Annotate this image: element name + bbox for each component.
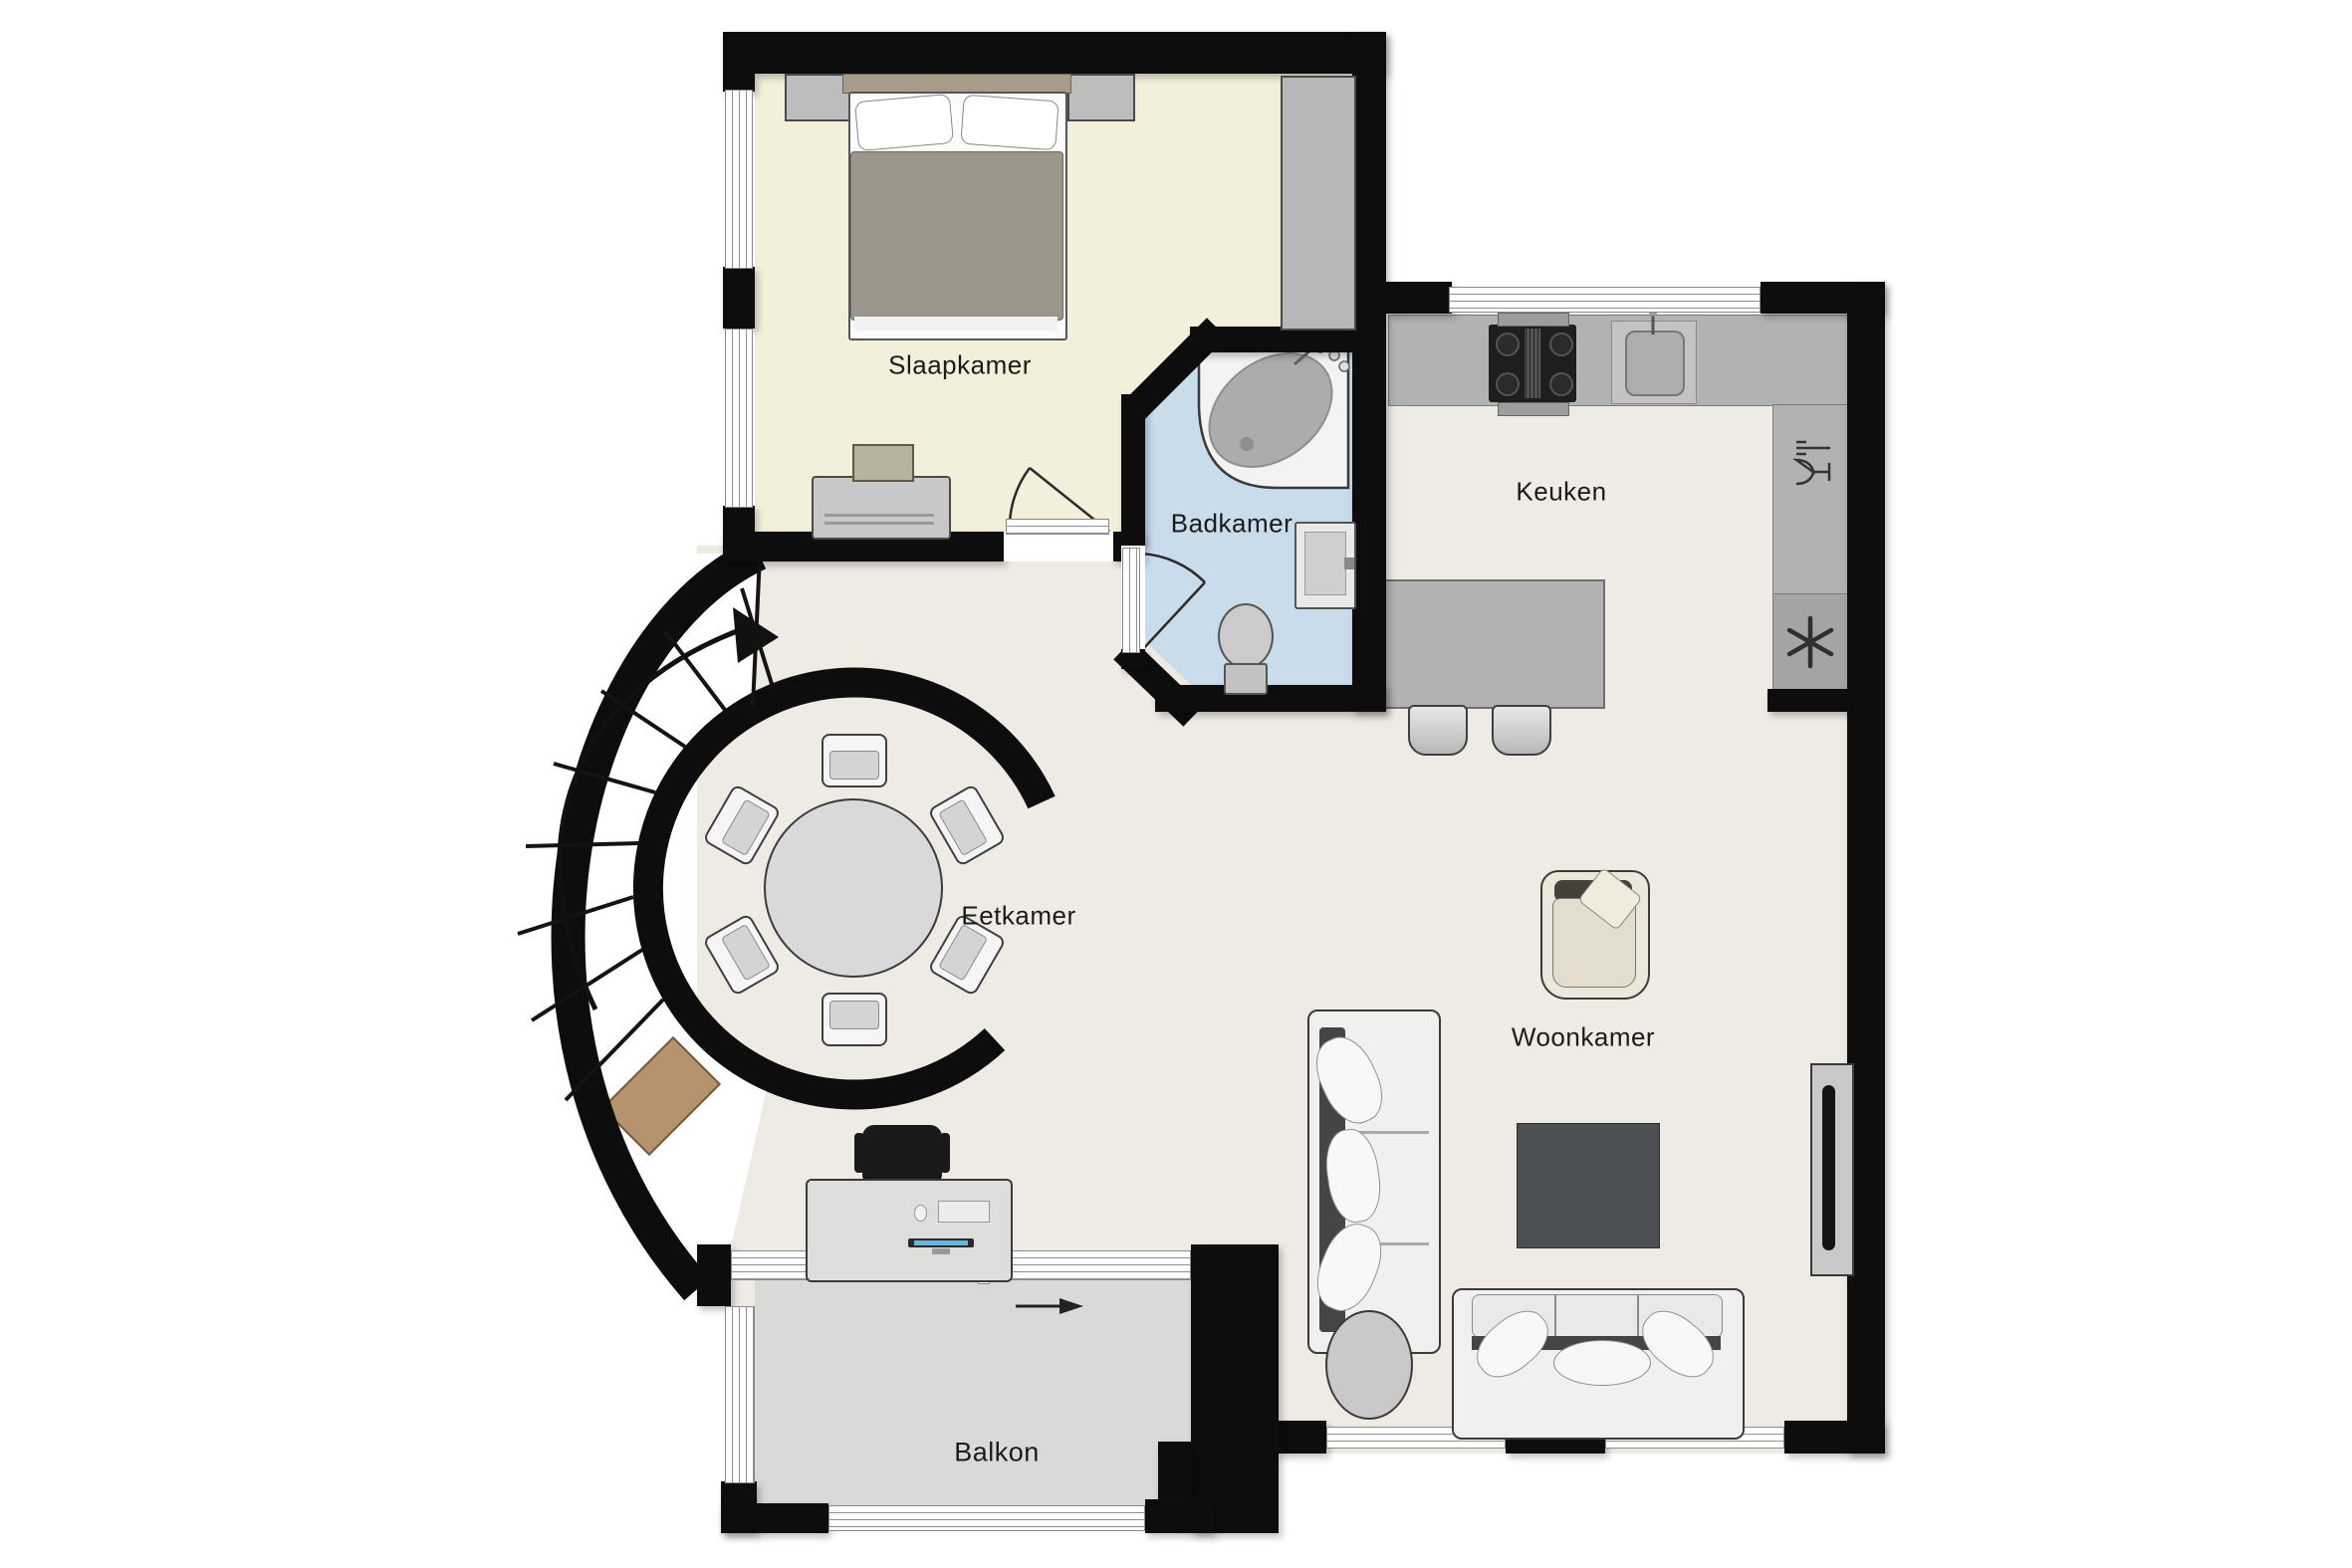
desk (806, 1179, 1013, 1282)
kitchen-counter-right (1772, 404, 1850, 595)
room-label-balkon: Balkon (954, 1438, 1040, 1468)
bed-headboard (842, 74, 1071, 94)
bed-pillow (960, 95, 1058, 151)
wall (723, 267, 755, 329)
balcony-right-wall (1191, 1244, 1279, 1533)
wall (1767, 689, 1850, 712)
monitor-base (932, 1248, 950, 1254)
wall (1847, 282, 1885, 1454)
bed-sheet (854, 317, 1058, 331)
tv (1822, 1085, 1835, 1250)
toilet-tank (1224, 663, 1268, 695)
kitchen-sink (1625, 331, 1685, 396)
balcony-floor (755, 1280, 1191, 1515)
monitor-screen (914, 1240, 968, 1245)
floor-plan: Slaapkamer Badkamer Keuken Eetkamer Woon… (0, 0, 2352, 1568)
room-label-keuken: Keuken (1516, 477, 1606, 508)
office-chair-arm (940, 1133, 950, 1173)
window (1449, 287, 1761, 313)
office-chair-arm (854, 1133, 864, 1173)
stove-flap-top (1498, 313, 1569, 327)
bedroom-door-opening (1004, 532, 1113, 561)
wall (1121, 394, 1145, 546)
burner (1496, 333, 1520, 356)
dining-chair (822, 993, 887, 1046)
wall (1275, 1421, 1326, 1454)
room-label-eetkamer: Eetkamer (961, 901, 1075, 932)
burner (1549, 333, 1573, 356)
wall (1784, 1421, 1885, 1454)
bed-pillow (854, 94, 954, 151)
wall (1155, 685, 1386, 712)
keyboard (938, 1201, 990, 1223)
dresser-box (852, 444, 914, 482)
wall (1386, 282, 1452, 314)
dining-table (764, 798, 943, 978)
office-chair (862, 1125, 942, 1181)
balcony-post (721, 1503, 828, 1533)
dresser-line (824, 522, 934, 525)
balcony-railing (725, 1306, 755, 1483)
toilet-bowl (1218, 603, 1274, 669)
room-label-slaapkamer: Slaapkamer (888, 350, 1032, 381)
sofa-2-back-divider (1554, 1294, 1556, 1336)
room-label-woonkamer: Woonkamer (1512, 1022, 1655, 1053)
stove-grill (1525, 329, 1540, 398)
dresser-line (824, 514, 934, 517)
freezer (1772, 593, 1850, 693)
basin-tap (1344, 558, 1354, 569)
nightstand (1067, 74, 1135, 121)
wall (1352, 32, 1386, 712)
burner (1549, 372, 1573, 396)
balcony-post (1158, 1442, 1191, 1503)
window (725, 329, 753, 508)
stove-flap-bottom (1498, 402, 1569, 416)
mouse (914, 1205, 927, 1222)
bedroom-door-slab (1006, 519, 1109, 535)
dresser (812, 476, 951, 540)
side-table (1325, 1310, 1413, 1420)
room-label-badkamer: Badkamer (1171, 509, 1294, 540)
sofa-lumbar-cushion (1553, 1340, 1651, 1386)
balcony-railing (828, 1505, 1145, 1531)
bar-stool (1492, 705, 1551, 756)
washbasin-bowl (1304, 532, 1346, 595)
bathroom-door-slab (1122, 548, 1140, 653)
kitchen-island (1368, 579, 1605, 709)
dining-chair (822, 734, 887, 787)
bed-blanket (850, 151, 1063, 321)
wall (697, 1244, 731, 1306)
window (725, 90, 753, 269)
wardrobe (1281, 76, 1356, 331)
burner (1496, 372, 1520, 396)
rug (1517, 1123, 1660, 1248)
sofa-2-back-divider (1637, 1294, 1639, 1336)
wall (723, 32, 1386, 74)
bar-stool (1408, 705, 1468, 756)
balcony-post (1145, 1499, 1213, 1533)
